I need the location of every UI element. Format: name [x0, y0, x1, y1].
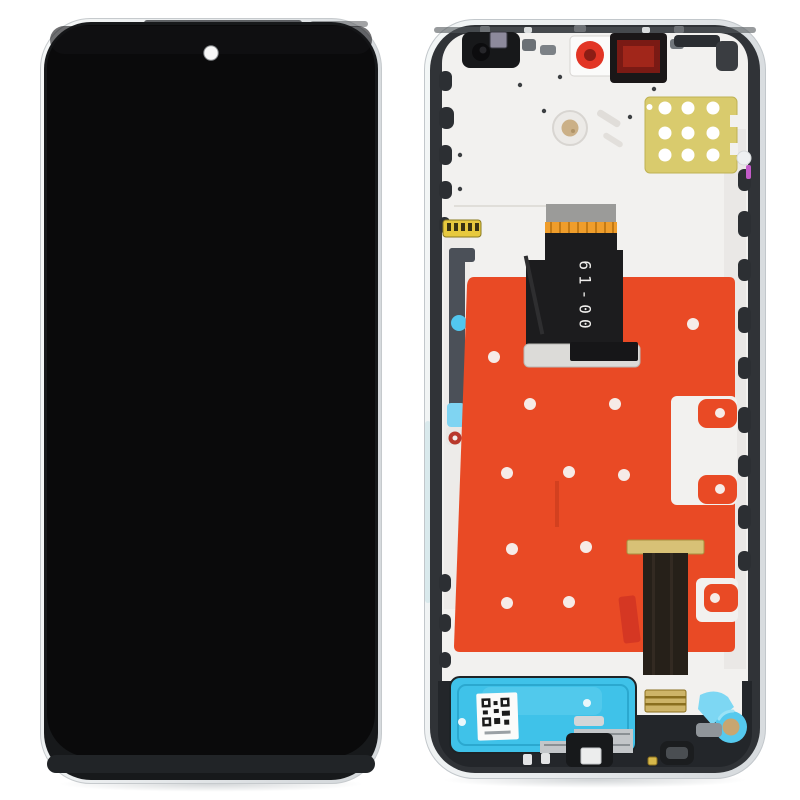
usb-port-opening: [581, 748, 601, 764]
hole-dot: [501, 467, 513, 479]
bottom-chin: [47, 755, 375, 773]
hole-dot: [501, 597, 513, 609]
hole-dot: [659, 127, 672, 140]
flex2-body: [643, 553, 688, 690]
back-assembly: 61-00: [424, 19, 766, 779]
hole-dot: [524, 398, 536, 410]
yellow-grid-pad: [645, 97, 738, 173]
frame-scallops-right: [738, 169, 751, 571]
camera-hole-red-film: [570, 36, 616, 76]
side-button-hole: [737, 151, 751, 165]
side-button-flex-magenta: [746, 165, 751, 179]
front-assembly: [40, 18, 382, 784]
hole-dot: [506, 543, 518, 555]
hole-dot: [659, 102, 672, 115]
hole-dot: [682, 102, 695, 115]
antenna-contact-gold: [443, 220, 481, 237]
hole-dot: [618, 469, 630, 481]
hole-dot: [687, 318, 699, 330]
sticker-crease: [555, 481, 559, 527]
sticker-cutout-upper: [671, 396, 737, 505]
hole-dot: [707, 149, 720, 162]
hole-dot: [707, 127, 720, 140]
sticker-cutout-lower: [696, 578, 738, 622]
hole-dot: [488, 351, 500, 363]
hole-dot: [682, 149, 695, 162]
product-photo: 61-00: [0, 0, 800, 800]
flex-over-bracket: [570, 342, 638, 361]
cyan-marker-dot: [451, 315, 467, 331]
hole-dot: [563, 466, 575, 478]
punch-hole-camera: [204, 46, 218, 60]
hole-dot: [563, 596, 575, 608]
qr-code-label: [476, 692, 519, 740]
flex-contact-band: [545, 222, 617, 233]
mic-contact-gold: [648, 757, 657, 765]
flex2-stiffener-gold: [627, 540, 704, 554]
lcd-screen: [47, 25, 375, 757]
yellow-pad-dots: [659, 102, 720, 162]
hole-dot: [659, 149, 672, 162]
flex-stiffener: [546, 204, 616, 222]
hole-dot: [682, 127, 695, 140]
hole-dot: [707, 102, 720, 115]
antenna-clip-2: [540, 45, 556, 55]
flex-cable-marking: 61-00: [576, 260, 595, 333]
antenna-clip: [522, 39, 536, 51]
hole-dot: [580, 541, 592, 553]
hole-dot: [609, 398, 621, 410]
bottom-frame-section: [438, 675, 752, 767]
